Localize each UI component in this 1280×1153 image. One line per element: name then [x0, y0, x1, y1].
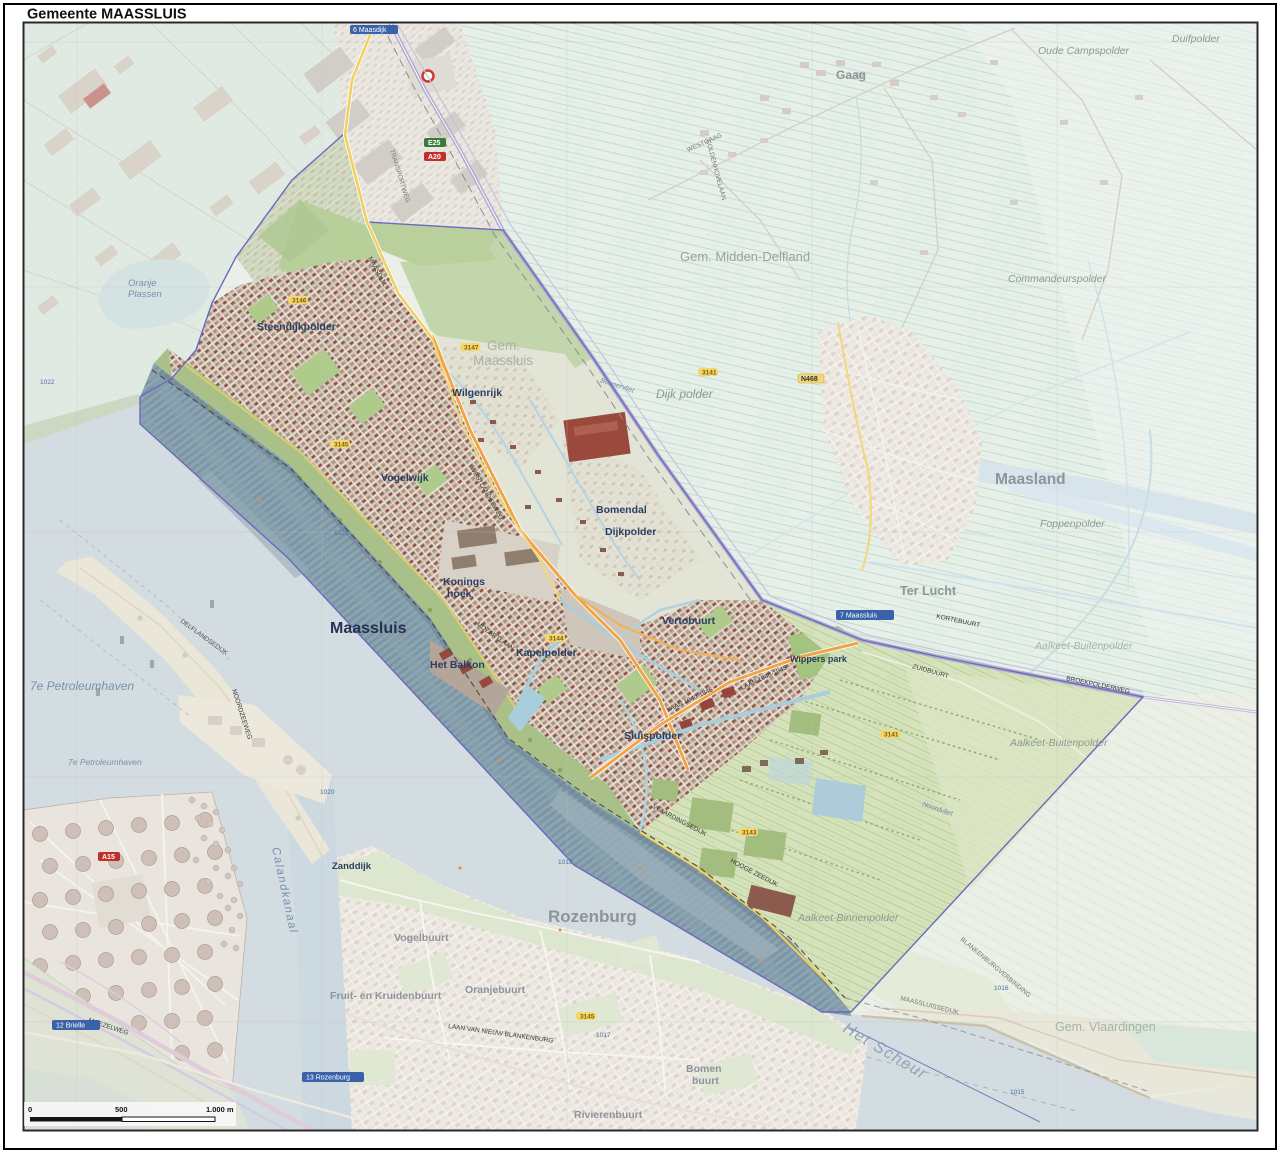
svg-text:1020: 1020 — [320, 789, 335, 796]
svg-text:500: 500 — [115, 1105, 128, 1114]
svg-text:Gem. Vlaardingen: Gem. Vlaardingen — [1055, 1020, 1156, 1034]
svg-text:3144: 3144 — [549, 636, 564, 643]
svg-text:Konings: Konings — [443, 576, 485, 588]
svg-text:Vogelbuurt: Vogelbuurt — [394, 932, 449, 944]
svg-text:3145: 3145 — [580, 1014, 595, 1021]
svg-text:Plassen: Plassen — [128, 289, 162, 300]
svg-text:3141: 3141 — [884, 732, 899, 739]
svg-text:Maassluis: Maassluis — [473, 353, 533, 368]
svg-text:Duifpolder: Duifpolder — [1172, 33, 1220, 45]
svg-text:hoek: hoek — [447, 588, 472, 600]
svg-text:1016: 1016 — [994, 985, 1009, 992]
svg-text:Vertobuurt: Vertobuurt — [662, 615, 716, 627]
svg-text:Gaag: Gaag — [836, 68, 866, 82]
svg-text:Fruit- en Kruidenbuurt: Fruit- en Kruidenbuurt — [330, 990, 442, 1002]
svg-text:1021: 1021 — [334, 530, 349, 537]
svg-text:Ter Lucht: Ter Lucht — [900, 584, 957, 598]
svg-text:1018: 1018 — [558, 859, 573, 866]
svg-text:Bomendal: Bomendal — [596, 504, 647, 516]
svg-text:Oranje: Oranje — [128, 278, 157, 289]
svg-text:Wippers park: Wippers park — [790, 654, 848, 664]
svg-text:Zanddijk: Zanddijk — [332, 861, 372, 872]
svg-text:Steendijkpolder: Steendijkpolder — [257, 321, 336, 333]
svg-text:6 Maasdijk: 6 Maasdijk — [353, 27, 387, 34]
svg-text:buurt: buurt — [692, 1075, 719, 1087]
svg-text:Aalkeet-Buitenpolder: Aalkeet-Buitenpolder — [1009, 737, 1108, 749]
svg-text:Maassluis: Maassluis — [330, 620, 407, 637]
svg-text:Vogelwijk: Vogelwijk — [381, 472, 429, 484]
svg-text:3141: 3141 — [702, 370, 717, 377]
svg-text:Oranjebuurt: Oranjebuurt — [465, 984, 526, 996]
svg-text:Commandeurspolder: Commandeurspolder — [1008, 273, 1107, 285]
svg-text:3143: 3143 — [742, 830, 757, 837]
svg-text:A20: A20 — [428, 154, 441, 161]
svg-text:7e Petroleumhaven: 7e Petroleumhaven — [68, 757, 142, 767]
svg-text:Oude Campspolder: Oude Campspolder — [1038, 45, 1130, 57]
svg-text:Foppenpolder: Foppenpolder — [1040, 518, 1105, 530]
svg-text:13 Rozenburg: 13 Rozenburg — [306, 1075, 350, 1082]
svg-text:Gem. Midden-Delfland: Gem. Midden-Delfland — [680, 249, 810, 264]
svg-text:N468: N468 — [801, 376, 818, 383]
svg-text:7 Maassluis: 7 Maassluis — [840, 613, 877, 620]
svg-text:7e Petroleumhaven: 7e Petroleumhaven — [30, 679, 134, 693]
svg-text:A15: A15 — [102, 854, 115, 861]
svg-text:Kapelpolder: Kapelpolder — [516, 647, 577, 659]
svg-text:1017: 1017 — [596, 1032, 611, 1039]
svg-text:3147: 3147 — [464, 345, 479, 352]
svg-text:Dijkpolder: Dijkpolder — [605, 526, 656, 538]
svg-text:1015: 1015 — [1010, 1089, 1025, 1096]
svg-text:1.000 m: 1.000 m — [206, 1105, 234, 1114]
svg-text:Dijk polder: Dijk polder — [656, 387, 714, 401]
svg-text:Gem.: Gem. — [487, 338, 520, 353]
svg-text:Aalkeet-Buitenpolder: Aalkeet-Buitenpolder — [1034, 640, 1133, 652]
svg-text:0: 0 — [28, 1105, 32, 1114]
svg-text:Het Balkon: Het Balkon — [430, 659, 485, 671]
svg-text:Aalkeet-Binnenpolder: Aalkeet-Binnenpolder — [797, 912, 899, 924]
svg-text:3146: 3146 — [292, 298, 307, 305]
svg-text:Wilgenrijk: Wilgenrijk — [452, 387, 502, 399]
svg-text:Maasland: Maasland — [995, 471, 1066, 488]
svg-text:Rivierenbuurt: Rivierenbuurt — [574, 1109, 643, 1121]
svg-text:Rozenburg: Rozenburg — [548, 907, 637, 926]
svg-text:12 Brielle: 12 Brielle — [56, 1023, 85, 1030]
svg-text:Bomen: Bomen — [686, 1063, 722, 1075]
svg-text:E25: E25 — [428, 140, 441, 147]
svg-text:Gemeente MAASSLUIS: Gemeente MAASSLUIS — [27, 7, 187, 23]
svg-text:3145: 3145 — [334, 442, 349, 449]
svg-text:Sluispolder: Sluispolder — [624, 730, 681, 742]
svg-text:1022: 1022 — [40, 379, 55, 386]
